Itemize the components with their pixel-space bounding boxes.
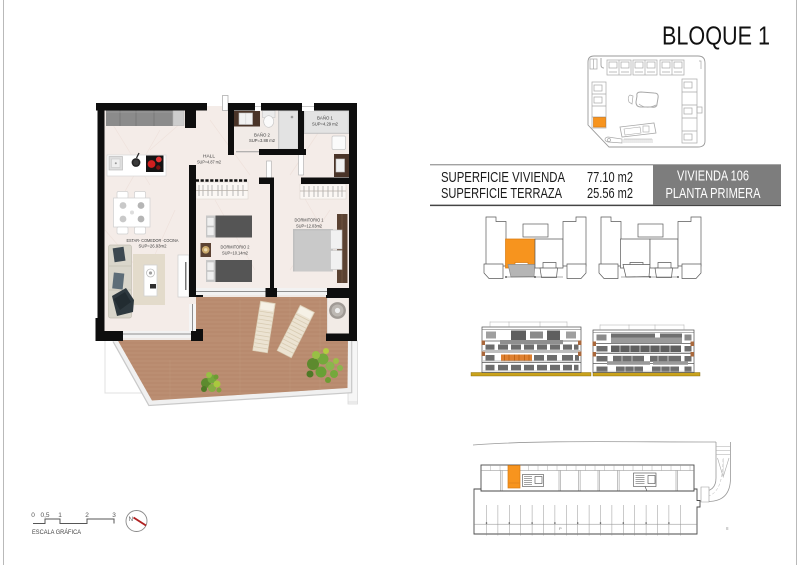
- svg-text:PLANTA PRIMERA: PLANTA PRIMERA: [666, 186, 761, 202]
- svg-text:1: 1: [58, 512, 62, 519]
- svg-text:SUP=4.87 m2: SUP=4.87 m2: [197, 160, 222, 165]
- svg-text:SUP=10.14m2: SUP=10.14m2: [222, 251, 249, 256]
- svg-text:SUPERFICIE TERRAZA: SUPERFICIE TERRAZA: [441, 185, 562, 202]
- svg-text:DORMITORIO 1: DORMITORIO 1: [295, 218, 325, 223]
- svg-text:BAÑO 2: BAÑO 2: [254, 133, 271, 138]
- svg-text:SUP=26.93m2: SUP=26.93m2: [139, 244, 168, 249]
- svg-text:SUP=12.03m2: SUP=12.03m2: [296, 224, 323, 229]
- svg-text:0: 0: [31, 512, 35, 519]
- svg-text:ESTAR- COMEDOR -COCINA: ESTAR- COMEDOR -COCINA: [127, 238, 179, 243]
- svg-text:ESCALA GRÁFICA: ESCALA GRÁFICA: [32, 527, 81, 536]
- svg-text:SUPERFICIE VIVIENDA: SUPERFICIE VIVIENDA: [441, 169, 565, 186]
- svg-text:BLOQUE 1: BLOQUE 1: [662, 23, 770, 51]
- svg-text:25.56 m2: 25.56 m2: [587, 185, 633, 202]
- svg-text:77.10 m2: 77.10 m2: [587, 169, 633, 186]
- svg-text:VIVIENDA 106: VIVIENDA 106: [677, 169, 749, 185]
- svg-text:0,5: 0,5: [40, 512, 49, 519]
- svg-text:BAÑO 1: BAÑO 1: [317, 116, 334, 121]
- svg-text:P: P: [559, 526, 562, 531]
- svg-text:SUP=4.29 m2: SUP=4.29 m2: [312, 122, 339, 127]
- svg-text:SUP=3.88 m2: SUP=3.88 m2: [249, 138, 276, 143]
- svg-text:2: 2: [85, 512, 89, 519]
- svg-text:3: 3: [112, 512, 116, 519]
- svg-text:N: N: [129, 516, 134, 523]
- svg-text:HALL: HALL: [203, 154, 216, 159]
- svg-text:DORMITORIO 2: DORMITORIO 2: [221, 245, 251, 250]
